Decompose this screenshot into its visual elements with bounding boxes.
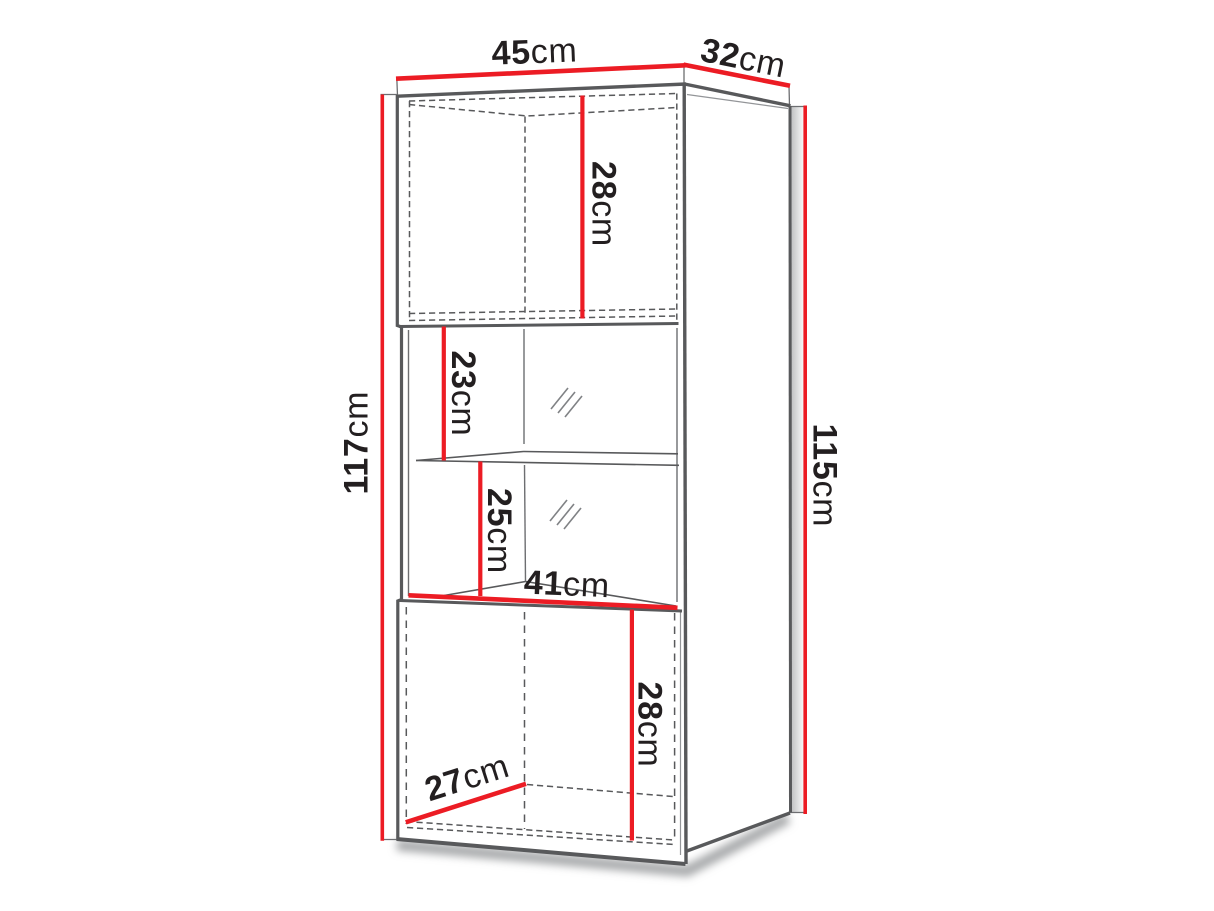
svg-text:28cm: 28cm <box>585 161 623 247</box>
svg-text:25cm: 25cm <box>480 488 518 574</box>
svg-text:45cm: 45cm <box>491 31 578 72</box>
svg-text:115cm: 115cm <box>806 424 844 528</box>
svg-text:117cm: 117cm <box>338 391 376 495</box>
svg-text:28cm: 28cm <box>631 682 669 768</box>
svg-text:41cm: 41cm <box>523 564 611 606</box>
svg-text:23cm: 23cm <box>444 351 482 437</box>
